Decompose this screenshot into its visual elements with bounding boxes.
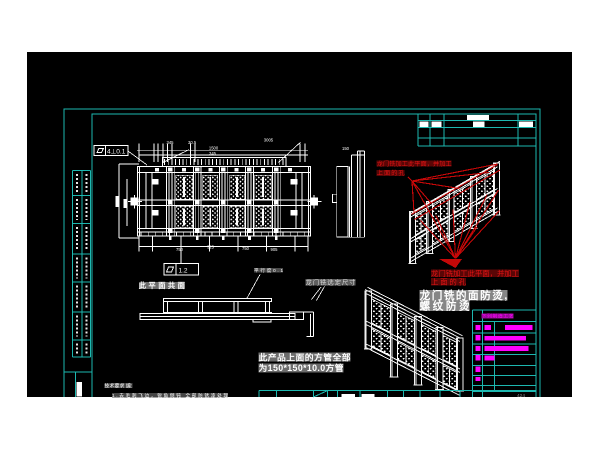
svg-text:龙门铣加工此平面，并加工: 龙门铣加工此平面，并加工 <box>377 160 452 168</box>
svg-text:龙门铣选定尺寸: 龙门铣选定尺寸 <box>306 278 357 287</box>
svg-text:345: 345 <box>209 151 217 156</box>
svg-text:上面的孔: 上面的孔 <box>431 277 467 286</box>
svg-text:750: 750 <box>242 246 250 251</box>
svg-text:424: 424 <box>517 393 525 399</box>
svg-text:1.2: 1.2 <box>179 268 188 275</box>
svg-text:4⊥0.1: 4⊥0.1 <box>107 148 126 155</box>
svg-text:为150*150*10.0方管: 为150*150*10.0方管 <box>259 362 344 373</box>
svg-text:3005: 3005 <box>264 138 274 143</box>
svg-text:325: 325 <box>207 245 215 250</box>
svg-text:30.5: 30.5 <box>188 140 197 145</box>
svg-text:上面的孔: 上面的孔 <box>377 169 405 177</box>
svg-text:750: 750 <box>176 247 184 252</box>
svg-text:345: 345 <box>167 140 175 145</box>
svg-text:下列制造工艺: 下列制造工艺 <box>482 313 514 320</box>
svg-text:此平面共面: 此平面共面 <box>139 281 185 290</box>
svg-text:150: 150 <box>342 146 350 151</box>
svg-text:1.去毛刺飞边，锐角倒钝 全部防锈漆处理: 1.去毛刺飞边，锐角倒钝 全部防锈漆处理 <box>112 392 228 399</box>
svg-text:技术要求 编:: 技术要求 编: <box>104 383 132 390</box>
svg-text:905: 905 <box>271 247 279 252</box>
svg-text:此产品上面的方管全部: 此产品上面的方管全部 <box>259 351 351 362</box>
